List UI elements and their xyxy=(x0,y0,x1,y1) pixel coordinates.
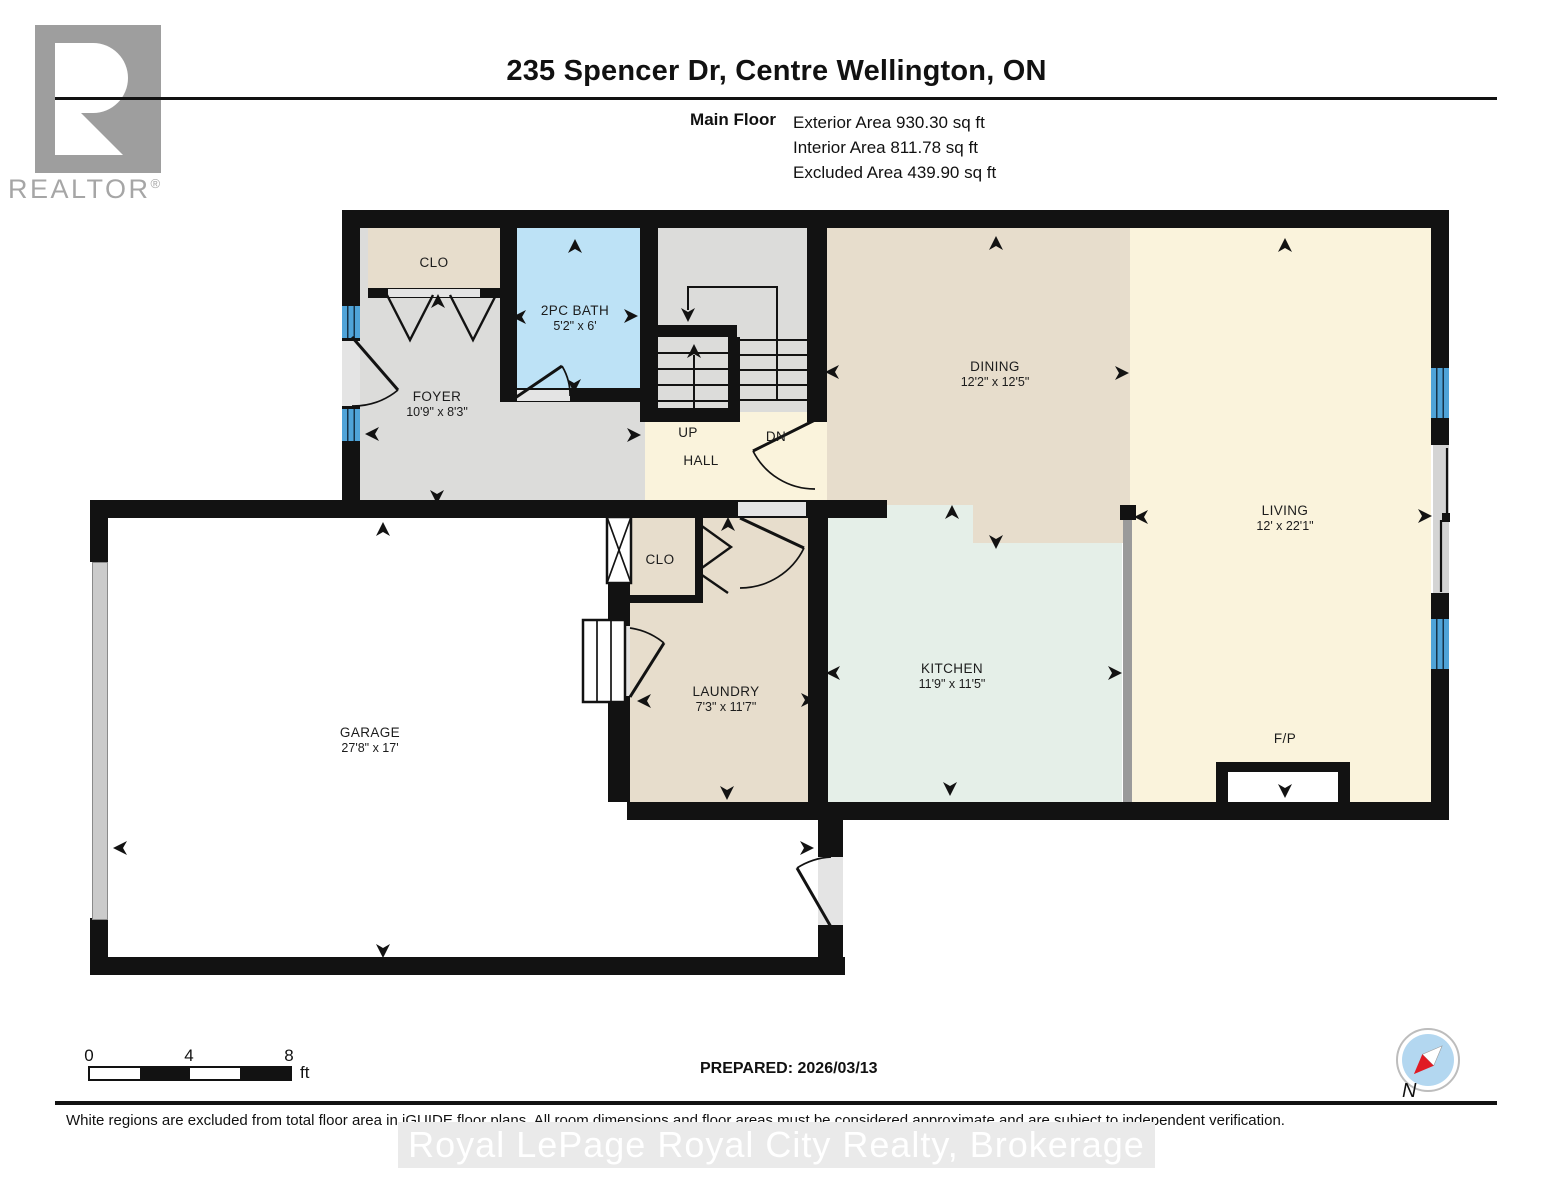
label-kitchen: KITCHEN 11'9" x 11'5" xyxy=(919,661,986,691)
label-laundry: LAUNDRY 7'3" x 11'7" xyxy=(692,684,759,714)
label-living: LIVING 12' x 22'1" xyxy=(1256,503,1313,533)
measure-arrow xyxy=(624,309,638,323)
closet2-door-icon xyxy=(699,524,731,570)
front-door-icon xyxy=(352,337,398,406)
measure-arrow xyxy=(825,365,839,379)
bath-door-icon xyxy=(515,366,570,398)
header-divider xyxy=(55,97,1497,100)
measure-arrow xyxy=(1134,510,1148,524)
measure-arrow xyxy=(989,535,1003,549)
footer-divider xyxy=(55,1101,1497,1105)
patio-door-icon xyxy=(1441,448,1450,592)
measure-arrow xyxy=(801,693,815,707)
measure-arrow xyxy=(826,666,840,680)
measure-arrow xyxy=(943,782,957,796)
measure-arrow xyxy=(430,490,444,504)
dn-stairs-treads xyxy=(740,340,807,400)
measure-arrow xyxy=(800,841,814,855)
closet1-bifold-right-icon xyxy=(450,295,496,340)
measure-arrow xyxy=(365,427,379,441)
measure-arrow xyxy=(627,428,641,442)
measure-arrow xyxy=(376,522,390,536)
measure-arrow xyxy=(1108,666,1122,680)
label-hall: HALL xyxy=(683,453,718,469)
closet2-door2-icon xyxy=(699,573,728,593)
measure-arrow xyxy=(637,694,651,708)
measure-arrow xyxy=(568,239,582,253)
measure-arrow xyxy=(1278,238,1292,252)
measure-arrow xyxy=(376,944,390,958)
label-foyer: FOYER 10'9" x 8'3" xyxy=(406,389,468,419)
measure-arrows xyxy=(113,236,1432,958)
garage-back-door-icon xyxy=(797,857,831,927)
label-closet1: CLO xyxy=(420,255,449,271)
label-bath: 2PC BATH 5'2" x 6' xyxy=(541,303,609,333)
label-fireplace: F/P xyxy=(1274,731,1296,747)
garage-steps-icon xyxy=(583,620,625,702)
garage-laundry-door-icon xyxy=(630,628,664,697)
laundry-door-icon xyxy=(740,518,804,588)
measure-arrow xyxy=(512,310,526,324)
measure-arrow xyxy=(989,236,1003,250)
measure-arrow xyxy=(113,841,127,855)
shaft-x-icon xyxy=(607,517,631,583)
label-up: UP xyxy=(678,425,698,441)
measure-arrow xyxy=(1278,784,1292,798)
label-dn: DN xyxy=(766,429,786,445)
measure-arrow xyxy=(1115,366,1129,380)
measure-arrow xyxy=(720,786,734,800)
label-closet2: CLO xyxy=(646,552,675,568)
label-garage: GARAGE 27'8" x 17' xyxy=(340,725,400,755)
dn-path xyxy=(688,287,777,400)
measure-arrow xyxy=(721,517,735,531)
label-dining: DINING 12'2" x 12'5" xyxy=(961,359,1030,389)
plan-annotations xyxy=(0,0,1553,1200)
measure-arrow xyxy=(945,505,959,519)
dn-arrow-icon xyxy=(681,308,695,322)
measure-arrow xyxy=(1418,509,1432,523)
closet1-bifold-left-icon xyxy=(387,295,433,340)
